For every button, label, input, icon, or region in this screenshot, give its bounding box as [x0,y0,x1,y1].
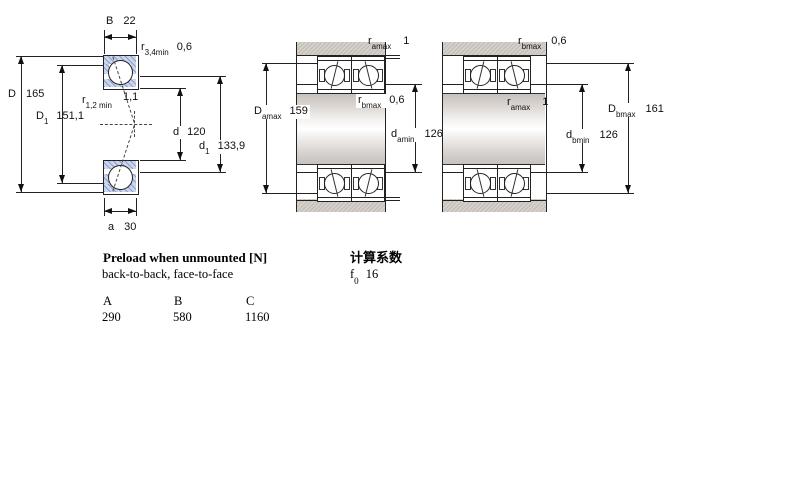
dim-label-D: D165 [8,88,44,101]
arrowhead-up-icon [177,88,183,96]
dim-label-r12min: r1,2 min [82,94,112,108]
arrowhead-up-icon [579,84,585,92]
arrowhead-down-icon [412,164,418,172]
centerline [134,111,135,137]
arrowhead-down-icon [18,184,24,192]
bearing-right [351,57,384,93]
preload-column-header-B: B [174,294,182,309]
bearing-left [318,57,351,93]
dim-label-rbmax: rbmax0,6 [518,35,567,49]
ring-line [352,197,384,198]
arrowhead-down-icon [59,175,65,183]
ring-face-line [383,197,400,198]
ext-line [262,193,317,194]
centerline [100,124,152,125]
ring-line [464,168,497,169]
arrowhead-up-icon [59,65,65,73]
bearing-pair-bottom [317,164,385,202]
ext-line [140,76,226,77]
arrowhead-down-icon [217,164,223,172]
arrowhead-up-icon [263,63,269,71]
dim-label-B: B22 [106,15,136,28]
preload-subheading: back-to-back, face-to-face [102,267,233,282]
shaft-step-line [442,172,463,173]
ring-line [318,89,351,90]
housing-edge [546,42,547,212]
ext-line [57,183,104,184]
bearing-left [464,57,497,93]
arrowhead-up-icon [18,56,24,64]
dim-line-Damax [266,63,267,193]
ring-line [352,89,384,90]
ext-line [140,172,226,173]
ext-line [136,30,137,54]
bearing-right [497,165,530,201]
bearing-right [351,165,384,201]
arrowhead-up-icon [412,84,418,92]
ext-line [140,160,186,161]
ext-line [16,192,104,193]
arrowhead-up-icon [625,63,631,71]
bearing-pair-top [317,56,385,94]
arrowhead-down-icon [177,152,183,160]
arrowhead-down-icon [579,164,585,172]
preload-value-A: 290 [102,310,121,325]
bearing-datasheet-drawing: B22 r3,4min0,6 D165 D1151,1 r1,2 min 1,1 [0,0,800,500]
shaft-step-line [296,84,317,85]
ring-face-line [383,58,400,59]
ring-line [352,60,384,61]
preload-heading: Preload when unmounted [N] [103,250,267,265]
ext-line [136,198,137,216]
ext-line [529,172,588,173]
ring-line [318,168,351,169]
arrowhead-right-icon [128,34,136,40]
dim-line-d [180,88,181,160]
dim-label-ramax: ramax1 [507,96,548,110]
shaft-step-line [442,84,463,85]
preload-value-B: 580 [173,310,192,325]
dim-line-d1 [220,76,221,172]
dim-line-dbmin [582,84,583,172]
ring-line [498,89,530,90]
ring-line [464,197,497,198]
dim-label-ramax: ramax1 [368,35,409,49]
dim-label-Damax: Damax159 [252,105,310,119]
housing-edge [385,42,386,212]
ext-line [16,56,104,57]
bearing-left [464,165,497,201]
ring-line [318,197,351,198]
calc-heading: 计算系数 [350,250,402,265]
dim-label-d1: d1133,9 [197,140,247,154]
ring-line [352,168,384,169]
ext-line [546,63,634,64]
shaft-step-line [296,172,317,173]
preload-column-header-A: A [103,294,112,309]
dim-label-rbmax: rbmax0,6 [356,94,407,108]
dim-label-a: a30 [108,221,136,234]
bearing-pair-bottom [463,164,531,202]
arrowhead-down-icon [263,185,269,193]
dim-label-D1: D1151,1 [36,110,84,124]
ext-line [262,63,317,64]
bearing-pair-top [463,56,531,94]
arrowhead-down-icon [625,185,631,193]
ring-line [464,60,497,61]
dim-label-d: d120 [171,126,207,139]
ring-line [498,168,530,169]
preload-column-header-C: C [246,294,254,309]
arrowhead-up-icon [217,76,223,84]
ring-line [498,197,530,198]
dim-label-Dbmax: Dbmax161 [606,103,666,117]
ring-line [318,60,351,61]
arrowhead-right-icon [128,208,136,214]
arrowhead-left-icon [104,34,112,40]
ext-line [546,193,634,194]
ring-line [464,89,497,90]
bearing-right [497,57,530,93]
ring-line [498,60,530,61]
arrowhead-left-icon [104,208,112,214]
bearing-left [318,165,351,201]
ext-line [383,172,422,173]
calc-factor-f0: f0 16 [350,267,378,284]
dim-line-D [21,56,22,192]
dim-label-damin: damin126 [389,128,445,142]
dim-label-r34min: r3,4min0,6 [141,41,192,55]
dim-line-Dbmax [628,63,629,193]
dim-label-dbmin: dbmin126 [564,129,620,143]
preload-value-C: 1160 [245,310,270,325]
